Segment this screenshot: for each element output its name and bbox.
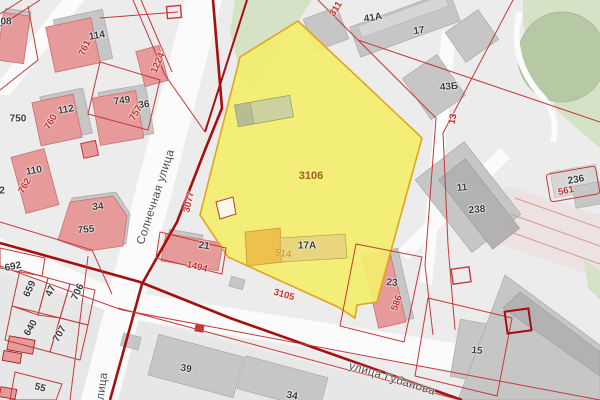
map-canvas[interactable]: 0811476111276075074936757110762234755122…	[0, 0, 600, 400]
map-layers	[0, 0, 600, 400]
building-114	[46, 18, 101, 73]
pond	[518, 12, 600, 102]
building-749	[92, 91, 144, 146]
building-112	[32, 94, 82, 146]
building-236-b	[572, 182, 600, 209]
building-514	[245, 228, 283, 266]
red-square-a	[451, 267, 471, 284]
building-17a	[280, 234, 347, 262]
building-small-square	[81, 140, 99, 158]
building-43b	[402, 54, 465, 119]
building-on-parcel-end	[235, 102, 255, 126]
building-21	[161, 233, 223, 271]
building-110	[11, 149, 59, 214]
building-small-mid	[229, 276, 245, 289]
